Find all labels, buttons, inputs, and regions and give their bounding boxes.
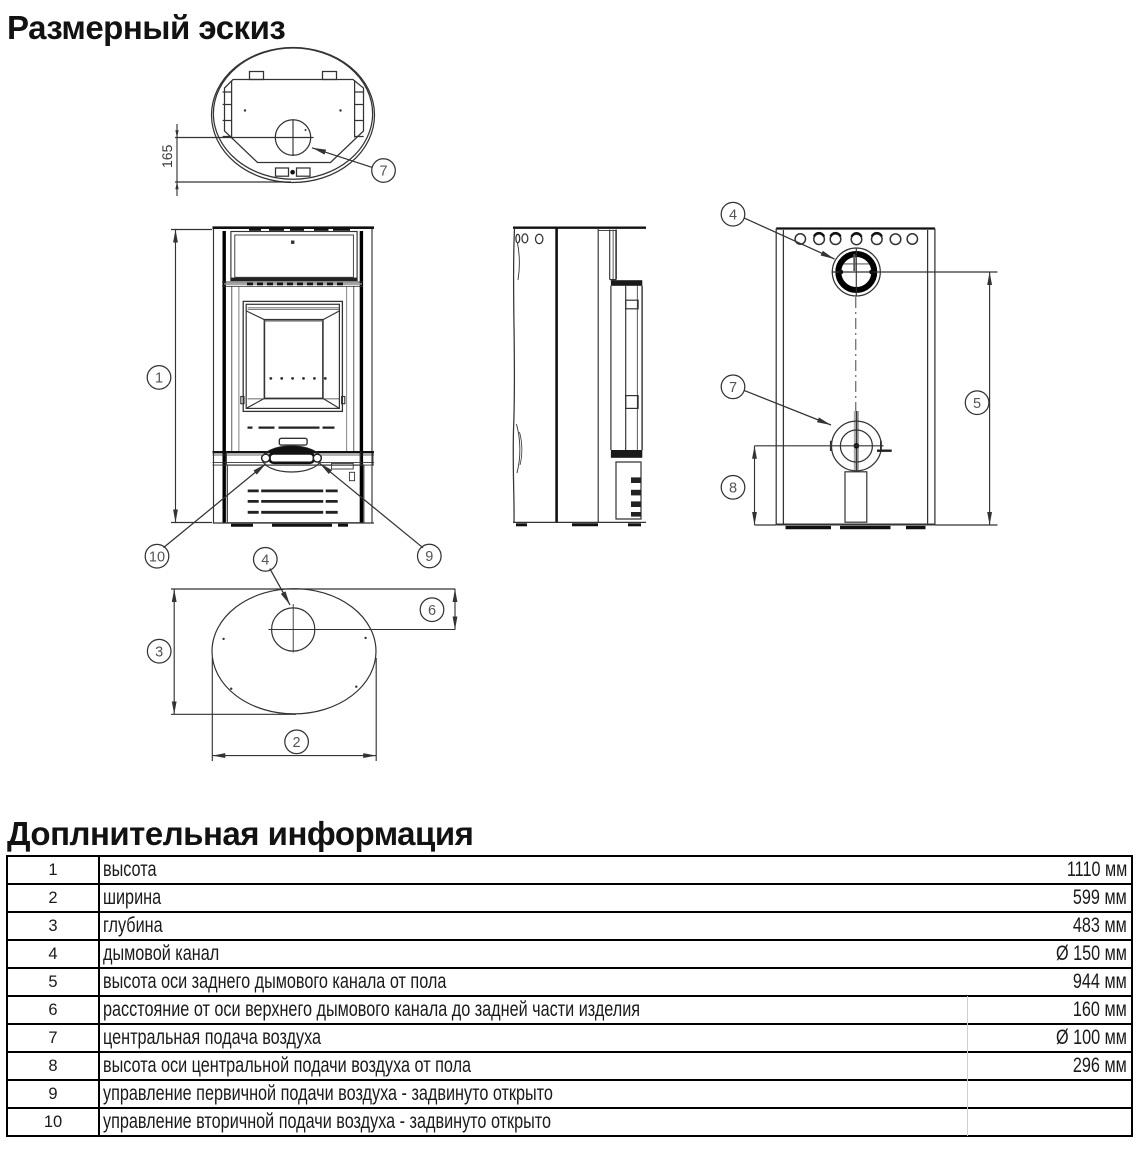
svg-text:7: 7 bbox=[379, 164, 387, 180]
svg-text:1: 1 bbox=[155, 371, 163, 387]
svg-text:9: 9 bbox=[425, 549, 433, 565]
svg-text:5: 5 bbox=[973, 396, 981, 412]
svg-text:8: 8 bbox=[729, 481, 737, 497]
svg-text:165: 165 bbox=[159, 144, 175, 168]
svg-text:2: 2 bbox=[293, 735, 301, 751]
svg-text:10: 10 bbox=[149, 549, 165, 565]
svg-text:7: 7 bbox=[729, 380, 737, 396]
svg-text:3: 3 bbox=[155, 644, 163, 660]
svg-text:4: 4 bbox=[261, 553, 269, 569]
svg-text:6: 6 bbox=[428, 603, 436, 619]
svg-text:4: 4 bbox=[729, 207, 737, 223]
